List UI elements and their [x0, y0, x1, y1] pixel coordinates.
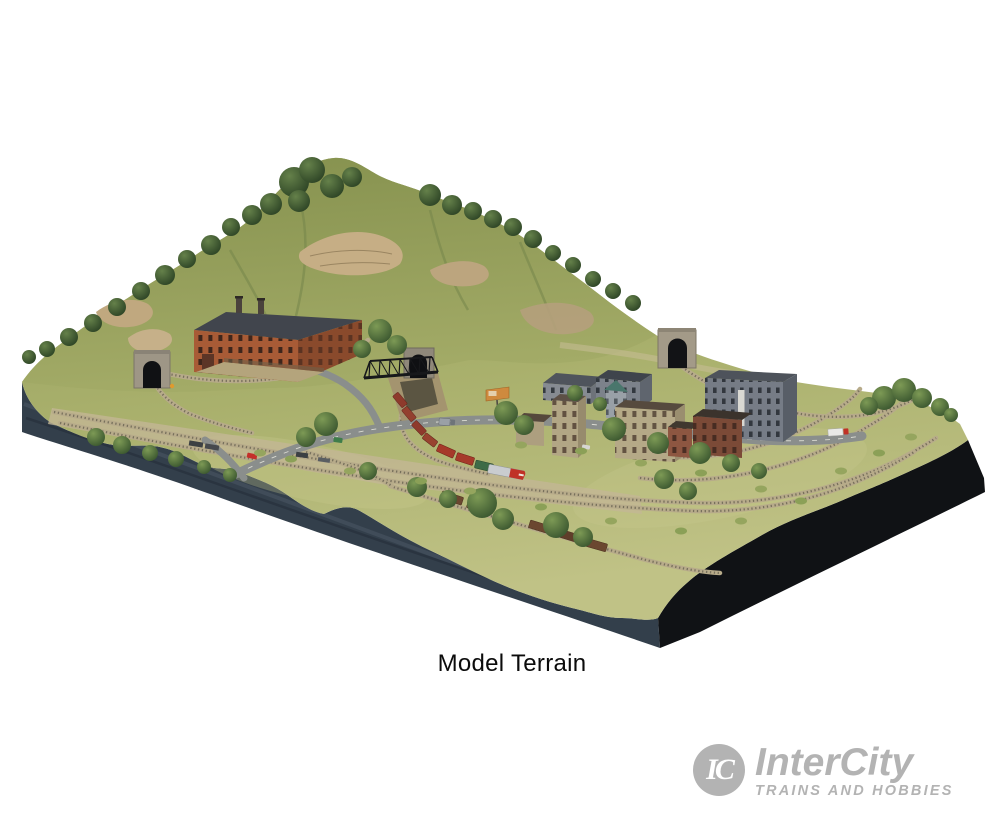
- tunnel-portal-right: [658, 328, 696, 368]
- model-terrain-photo: [0, 0, 1000, 833]
- tunnel-portal-left: [134, 350, 170, 388]
- brand-logo: IC InterCity TRAINS AND HOBBIES: [693, 744, 954, 799]
- trackside-signal: [170, 384, 174, 388]
- brand-monogram-icon: IC: [693, 744, 745, 796]
- product-photo-page: Model Terrain IC InterCity TRAINS AND HO…: [0, 0, 1000, 833]
- brand-tagline: TRAINS AND HOBBIES: [755, 783, 954, 799]
- brand-name: InterCity: [755, 744, 954, 781]
- photo-caption: Model Terrain: [12, 650, 1000, 678]
